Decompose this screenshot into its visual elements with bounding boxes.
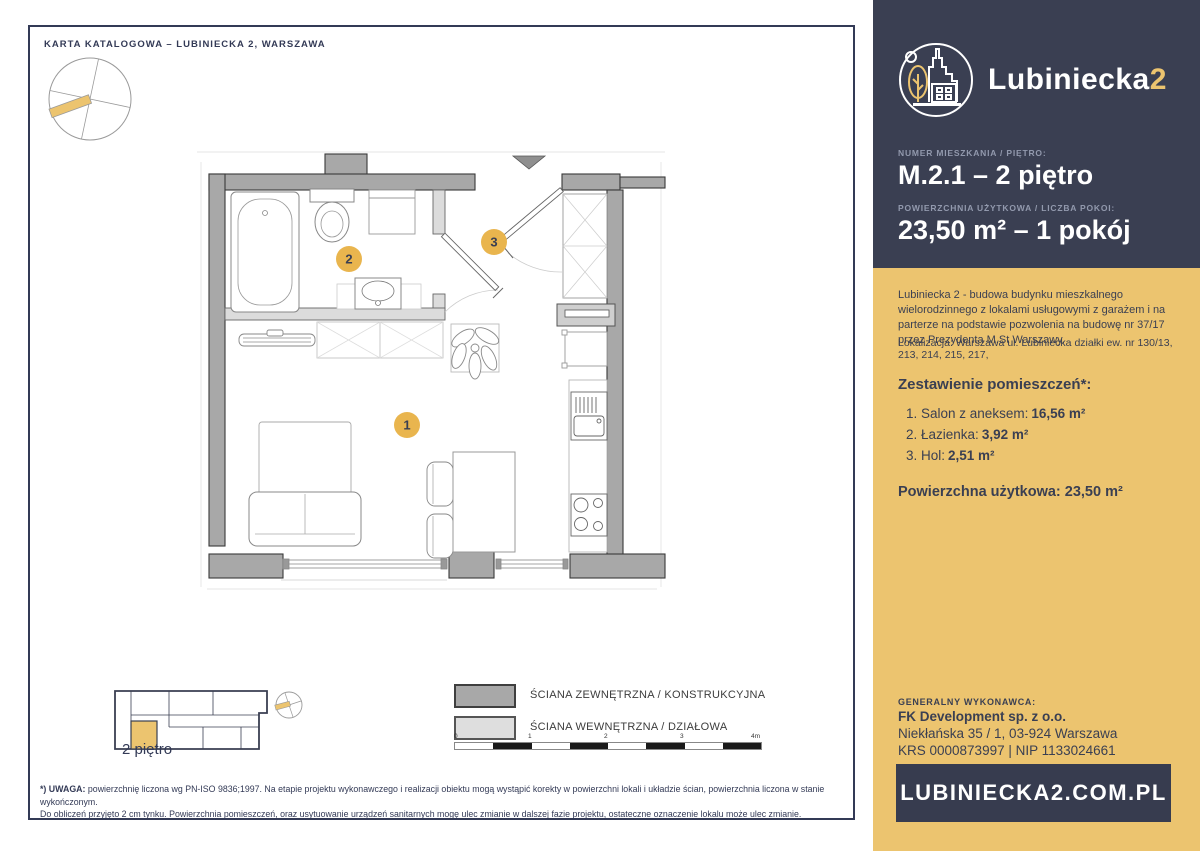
stove [571, 494, 607, 536]
plan-card: KARTA KATALOGOWA – LUBINIECKA 2, WARSZAW… [28, 25, 855, 820]
badge-bathroom: 2 [345, 252, 352, 267]
footnote-line1: powierzchnię liczona wg PN-ISO 9836;1997… [40, 784, 824, 807]
unit-value: M.2.1 – 2 piętro [898, 160, 1093, 191]
legend-label-interior: ŚCIANA WEWNĘTRZNA / DZIAŁOWA [530, 721, 727, 733]
legend-label-exterior: ŚCIANA ZEWNĘTRZNA / KONSTRUKCYJNA [530, 689, 765, 701]
unit-label: NUMER MIESZKANIA / PIĘTRO: [898, 148, 1046, 158]
logo-text: Lubiniecka2 [988, 63, 1167, 97]
logo-accent: 2 [1150, 63, 1167, 96]
scale-strip [454, 742, 762, 750]
room-row: 3. Hol:2,51 m² [906, 448, 995, 463]
contractor-name: FK Development sp. z o.o. [898, 709, 1066, 724]
sidebar: Lubiniecka2 NUMER MIESZKANIA / PIĘTRO: M… [873, 0, 1200, 851]
bathtub [231, 192, 299, 312]
legend-swatch-exterior [454, 684, 516, 708]
room-area: 3,92 m² [982, 427, 1029, 442]
logo-building-icon [896, 40, 976, 120]
footnote-label: *) UWAGA: [40, 784, 85, 794]
dining-table [427, 452, 515, 558]
kitchen-sink [571, 392, 607, 440]
badge-salon: 1 [403, 418, 410, 433]
room-row: 1. Salon z aneksem:16,56 m² [906, 406, 1085, 421]
logo-tree [909, 66, 927, 102]
scale-ticks: 0 1 2 3 4m [454, 733, 760, 741]
area-label: POWIERZCHNIA UŻYTKOWA / LICZBA POKOI: [898, 203, 1115, 213]
kitchen-counter [569, 380, 607, 552]
scale-tick: 3 [680, 733, 684, 740]
fridge [562, 330, 607, 368]
wardrobe [563, 194, 607, 298]
room-area: 16,56 m² [1031, 406, 1085, 421]
logo-word: Lubiniecka [988, 63, 1150, 96]
contractor-address: Niekłańska 35 / 1, 03-924 Warszawa [898, 726, 1117, 741]
plant [449, 324, 501, 379]
contractor-ids: KRS 0000873997 | NIP 1133024661 [898, 743, 1116, 758]
mini-plan-label: 2 piętro [122, 741, 172, 758]
website-url: LUBINIECKA2.COM.PL [900, 780, 1167, 806]
badge-hall: 3 [490, 235, 497, 250]
windows [281, 559, 568, 580]
room-name: 3. Hol: [906, 448, 945, 463]
logo-tower [929, 49, 957, 102]
cabinets [317, 322, 443, 358]
mini-compass-icon [275, 692, 302, 718]
website-button[interactable]: LUBINIECKA2.COM.PL [896, 764, 1171, 822]
total-label: Powierzchna użytkowa: [898, 484, 1061, 500]
sofa [249, 422, 361, 546]
scale-bar: 0 1 2 3 4m [454, 733, 760, 755]
room-area: 2,51 m² [948, 448, 995, 463]
sidebar-details: Lubiniecka 2 - budowa budynku mieszkalne… [873, 268, 1200, 851]
shelf [557, 304, 615, 326]
contractor-label: GENERALNY WYKONAWCA: [898, 697, 1036, 707]
card-title: KARTA KATALOGOWA – LUBINIECKA 2, WARSZAW… [44, 39, 326, 50]
footnote-line2: Do obliczeń przyjęto 2 cm tynku. Powierz… [40, 809, 801, 819]
location-line: Lokalizacja: Warszawa ul. Lubiniecka dzi… [898, 337, 1188, 361]
scale-tick: 2 [604, 733, 608, 740]
washbasin [337, 278, 421, 309]
scale-tick: 4m [751, 733, 760, 740]
area-value: 23,50 m² – 1 pokój [898, 215, 1131, 246]
footnote: *) UWAGA: powierzchnię liczona wg PN-ISO… [40, 783, 840, 821]
catalog-card-page: KARTA KATALOGOWA – LUBINIECKA 2, WARSZAW… [0, 0, 1200, 851]
total-value: 23,50 m² [1065, 484, 1123, 500]
floor-plan: 1 2 3 [197, 142, 667, 597]
radiator [239, 330, 315, 346]
rooms-heading: Zestawienie pomieszczeń*: [898, 376, 1091, 393]
total-area: Powierzchna użytkowa:23,50 m² [898, 484, 1127, 500]
entrance-door [497, 188, 563, 272]
sidebar-header: Lubiniecka2 NUMER MIESZKANIA / PIĘTRO: M… [873, 0, 1200, 268]
washing-machine [369, 190, 415, 234]
toilet [310, 189, 354, 242]
scale-tick: 0 [454, 733, 458, 740]
room-row: 2. Łazienka:3,92 m² [906, 427, 1028, 442]
compass-icon [46, 55, 134, 143]
room-name: 1. Salon z aneksem: [906, 406, 1028, 421]
scale-tick: 1 [528, 733, 532, 740]
logo: Lubiniecka2 [896, 40, 1167, 120]
room-name: 2. Łazienka: [906, 427, 979, 442]
entrance-arrow-icon [513, 156, 545, 169]
